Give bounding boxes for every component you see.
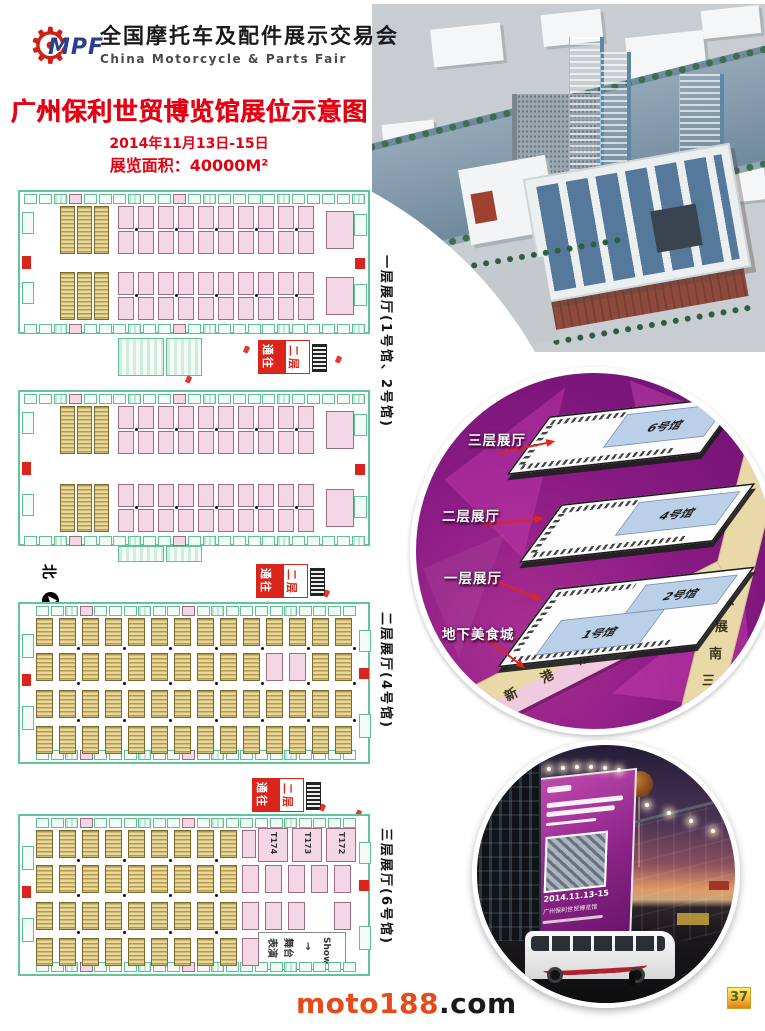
perimeter-booth: [167, 606, 180, 616]
perimeter-booth: [255, 818, 268, 828]
road-name-char: 三: [702, 670, 715, 689]
perimeter-booth: [270, 818, 283, 828]
booth-cell: [118, 231, 134, 254]
booth-cell: [238, 231, 254, 254]
wall-booth: [22, 212, 34, 234]
website-url: moto188.com: [296, 987, 517, 1020]
booth-block: [289, 618, 306, 646]
booth-cell: [138, 484, 154, 507]
hall-1-plan: [18, 390, 370, 546]
booth-cell: [218, 272, 234, 295]
perimeter-booth: [299, 962, 312, 972]
perimeter-booth: [337, 536, 350, 546]
booth-cell: [298, 206, 314, 229]
booth-block: [128, 653, 145, 681]
perimeter-booth: [292, 536, 305, 546]
wall-booth: [354, 496, 367, 518]
perimeter-booth: [84, 394, 97, 404]
perimeter-booth: [240, 606, 253, 616]
booth-cell: [326, 211, 354, 249]
booth-cell: [278, 272, 294, 295]
booth-block: [174, 902, 191, 930]
booth-block: [174, 830, 191, 858]
booth-block: [59, 830, 76, 858]
floodlight-dot: [711, 829, 715, 833]
booth-cell: [238, 484, 254, 507]
booth-cell: [266, 653, 283, 681]
plate-ticks: [561, 500, 641, 514]
booth-block: [151, 938, 168, 966]
booth-cell: [258, 231, 274, 254]
perimeter-booth: [284, 606, 297, 616]
booth-cell: [288, 902, 305, 930]
aisle-dot: [307, 719, 310, 722]
brochure-page: ⚙ MPF 全国摩托车及配件展示交易会 China Motorcycle & P…: [0, 0, 765, 1031]
perimeter-booth: [109, 818, 122, 828]
perimeter-booth: [36, 818, 49, 828]
perimeter-booth: [54, 536, 67, 546]
booth-block: [94, 484, 109, 532]
booth-T172: T172: [326, 828, 356, 862]
perimeter-booth: [307, 324, 320, 334]
booth-block: [77, 272, 92, 320]
escalator-hatch: [306, 782, 321, 810]
plate-ticks: [555, 583, 637, 597]
booth-block: [220, 865, 237, 893]
perimeter-booth: [69, 324, 82, 334]
red-marker: [323, 589, 330, 597]
perimeter-booth: [84, 194, 97, 204]
booth-block: [197, 865, 214, 893]
perimeter-booth: [51, 606, 64, 616]
stair-core: [359, 668, 369, 679]
wall-booth: [22, 918, 34, 942]
perimeter-booth: [292, 324, 305, 334]
booth-block: [36, 830, 53, 858]
aisle-dot: [77, 931, 80, 934]
booth-block: [220, 938, 237, 966]
booth-cell: [178, 272, 194, 295]
aisle-dot: [123, 894, 126, 897]
perimeter-booth: [233, 194, 246, 204]
floodlight-dot: [547, 767, 551, 771]
wall-booth: [22, 494, 34, 516]
booth-block: [312, 653, 329, 681]
perimeter-booth: [277, 536, 290, 546]
booth-cell: [118, 206, 134, 229]
booth-cell: [218, 206, 234, 229]
booth-cell: [242, 830, 256, 858]
booth-block: [60, 206, 75, 254]
sign-text: 二层: [280, 783, 296, 809]
perimeter-booth: [226, 818, 239, 828]
booth-block: [105, 902, 122, 930]
sign-white-panel: 二层: [279, 778, 304, 812]
red-marker: [319, 803, 326, 811]
hall-2-label: 2号馆: [658, 584, 704, 604]
perimeter-booth: [138, 818, 151, 828]
perimeter-booth: [343, 606, 356, 616]
event-dates: 2014年11月13日-15日: [0, 133, 378, 153]
perimeter-booth: [69, 394, 82, 404]
aisle-dot: [215, 682, 218, 685]
perimeter-booth: [211, 606, 224, 616]
perimeter-booth: [218, 194, 231, 204]
perimeter-booth: [233, 536, 246, 546]
aisle-dot: [169, 719, 172, 722]
booth-block: [105, 726, 122, 754]
booth-cell: [258, 272, 274, 295]
aisle-dot: [77, 719, 80, 722]
booth-block: [59, 865, 76, 893]
perimeter-booth: [270, 606, 283, 616]
perimeter-booth: [328, 818, 341, 828]
booth-block: [128, 726, 145, 754]
escalator-hatch: [312, 344, 327, 372]
aisle-dot: [169, 931, 172, 934]
booth-block: [197, 902, 214, 930]
show-area-text: 表演: [266, 938, 281, 958]
perimeter-booth: [218, 394, 231, 404]
booth-block: [151, 902, 168, 930]
perimeter-booth: [51, 818, 64, 828]
perimeter-booth: [99, 536, 112, 546]
stair-core: [355, 464, 365, 475]
perimeter-booth: [54, 394, 67, 404]
booth-block: [36, 618, 53, 646]
booth-block: [60, 484, 75, 532]
page-title: 广州保利世贸博览馆展位示意图: [0, 92, 378, 128]
page-number-badge: 37: [727, 987, 751, 1009]
perimeter-booth: [203, 394, 216, 404]
perimeter-booth: [277, 324, 290, 334]
booth-block: [151, 830, 168, 858]
perimeter-booth: [99, 324, 112, 334]
booth-block: [128, 938, 145, 966]
booth-block: [36, 690, 53, 718]
booth-block: [77, 406, 92, 454]
booth-block: [197, 726, 214, 754]
booth-cell: [326, 489, 354, 527]
booth-block: [197, 618, 214, 646]
booth-block: [243, 618, 260, 646]
perimeter-booth: [84, 324, 97, 334]
perimeter-booth: [211, 818, 224, 828]
booth-cell: [242, 938, 259, 966]
hall-1-label: 1号馆: [577, 622, 623, 642]
booth-cell: [334, 865, 351, 893]
perimeter-booth: [124, 818, 137, 828]
floodlight-dot: [689, 819, 693, 823]
booth-block: [312, 618, 329, 646]
perimeter-booth: [143, 394, 156, 404]
aisle-dot: [123, 859, 126, 862]
booth-block: [82, 830, 99, 858]
floor-plan-level1: 通往 二层: [6, 186, 378, 564]
stair-core: [22, 886, 31, 898]
perimeter-booth: [80, 606, 93, 616]
booth-cell: [138, 509, 154, 532]
perimeter-booth: [248, 194, 261, 204]
perimeter-booth: [313, 818, 326, 828]
perimeter-booth: [24, 394, 37, 404]
booth-cell: [258, 206, 274, 229]
perimeter-booth: [167, 818, 180, 828]
booth-block: [151, 653, 168, 681]
wall-booth: [22, 846, 34, 870]
wall-booth: [359, 842, 371, 864]
perimeter-booth: [270, 962, 283, 972]
perimeter-booth: [292, 194, 305, 204]
fair-logo: ⚙ MPF 全国摩托车及配件展示交易会 China Motorcycle & P…: [28, 20, 399, 74]
booth-cell: [278, 431, 294, 454]
perimeter-booth: [158, 194, 171, 204]
aisle-dot: [169, 682, 172, 685]
label-floor1: 一层展厅: [444, 567, 502, 587]
wall-booth: [354, 414, 367, 436]
perimeter-booth: [343, 818, 356, 828]
booth-cell: [158, 406, 174, 429]
booth-block: [151, 690, 168, 718]
perimeter-booth: [39, 394, 52, 404]
wall-booth: [354, 214, 367, 236]
perimeter-booth: [54, 194, 67, 204]
perimeter-booth: [262, 194, 275, 204]
plate-ticks: [549, 412, 629, 426]
booth-cell: [238, 406, 254, 429]
hall-6-area: 6号馆: [603, 403, 728, 448]
booth-cell: [198, 231, 214, 254]
floodlight-dot: [667, 811, 671, 815]
booth-block: [59, 938, 76, 966]
booth-T173: T173: [292, 828, 322, 862]
billboard-image: [544, 831, 608, 894]
booth-cell: [118, 272, 134, 295]
booth-block: [243, 653, 260, 681]
booth-block: [36, 938, 53, 966]
aisle-dot: [123, 931, 126, 934]
hall-2-plan: [18, 190, 370, 334]
booth-cell: [178, 484, 194, 507]
booth-block: [128, 690, 145, 718]
sign-red-panel: 通往: [252, 778, 279, 812]
booth-cell: [118, 406, 134, 429]
booth-cell: [298, 231, 314, 254]
perimeter-booth: [188, 194, 201, 204]
yellow-sign: [677, 913, 709, 925]
booth-cell: [198, 406, 214, 429]
label-floor2: 二层展厅: [442, 505, 500, 525]
escalator-sign: 通往 二层: [258, 340, 310, 374]
perimeter-booth: [128, 536, 141, 546]
booth-cell: [238, 297, 254, 320]
booth-block: [197, 830, 214, 858]
perimeter-booth: [54, 324, 67, 334]
perimeter-booth: [277, 194, 290, 204]
booth-block: [151, 618, 168, 646]
booth-cell: [258, 484, 274, 507]
perimeter-booth: [153, 606, 166, 616]
perimeter-booth: [218, 324, 231, 334]
booth-block: [197, 653, 214, 681]
booth-block: [82, 690, 99, 718]
sign-white-panel: 二层: [283, 564, 308, 598]
perimeter-booth: [24, 194, 37, 204]
site-name: moto188: [296, 987, 439, 1020]
show-area-text: Show: [321, 937, 331, 964]
booth-block: [220, 902, 237, 930]
booth-block: [266, 690, 283, 718]
plan3-side-label: 三层展厅(6号馆): [378, 828, 397, 945]
road-name-char: 路: [696, 697, 709, 716]
perimeter-booth: [337, 194, 350, 204]
booth-block: [220, 830, 237, 858]
stair-core: [22, 462, 31, 475]
booth-cell: [218, 297, 234, 320]
booth-cell: [138, 231, 154, 254]
booth-cell: [278, 509, 294, 532]
perimeter-booth: [128, 194, 141, 204]
perimeter-booth: [307, 394, 320, 404]
perimeter-booth: [94, 818, 107, 828]
booth-cell: [158, 509, 174, 532]
aisle-dot: [169, 647, 172, 650]
perimeter-booth: [24, 324, 37, 334]
floodlight-dot: [561, 766, 565, 770]
booth-cell: [158, 231, 174, 254]
perimeter-booth: [99, 194, 112, 204]
booth-block: [174, 865, 191, 893]
booth-block: [128, 618, 145, 646]
booth-block: [128, 865, 145, 893]
booth-cell: [298, 431, 314, 454]
perimeter-booth: [352, 394, 365, 404]
booth-cell: [198, 509, 214, 532]
aisle-dot: [77, 859, 80, 862]
booth-T174: T174: [258, 828, 288, 862]
booth-cell: [178, 231, 194, 254]
perimeter-booth: [143, 194, 156, 204]
floodlight-dot: [589, 765, 593, 769]
sign-text: 二层: [284, 569, 300, 595]
aisle-dot: [215, 719, 218, 722]
exhibit-area: 展览面积：40000M²: [0, 152, 378, 176]
booth-block: [59, 653, 76, 681]
aisle-dot: [307, 682, 310, 685]
wall-booth: [22, 282, 34, 304]
hall-4-plan: [18, 602, 370, 764]
sign-red-panel: 通往: [256, 564, 283, 598]
booth-cell: [298, 406, 314, 429]
booth-block: [77, 206, 92, 254]
red-marker: [335, 355, 342, 363]
glass-tower: [569, 37, 604, 181]
booth-block: [289, 690, 306, 718]
booth-cell: [138, 406, 154, 429]
org-name-en: China Motorcycle & Parts Fair: [100, 52, 399, 66]
booth-block: [59, 726, 76, 754]
aisle-dot: [123, 647, 126, 650]
booth-block: [220, 653, 237, 681]
perimeter-booth: [109, 606, 122, 616]
perimeter-booth: [299, 606, 312, 616]
aisle-dot: [353, 719, 356, 722]
booth-block: [220, 690, 237, 718]
perimeter-booth: [39, 536, 52, 546]
aisle-dot: [123, 719, 126, 722]
aisle-dot: [169, 859, 172, 862]
floodlight-dot: [603, 766, 607, 770]
wall-booth: [359, 630, 371, 652]
booth-label: T173: [303, 832, 312, 854]
aisle-dot: [215, 859, 218, 862]
booth-cell: [218, 231, 234, 254]
perimeter-booth: [69, 194, 82, 204]
night-photo: 2014.11.13-15 广州保利世贸博览馆: [472, 740, 740, 1008]
perimeter-booth: [284, 818, 297, 828]
booth-cell: [326, 277, 354, 315]
perimeter-booth: [143, 536, 156, 546]
perimeter-booth: [39, 194, 52, 204]
booth-cell: [278, 231, 294, 254]
cmpf-logo: ⚙ MPF: [28, 20, 90, 74]
perimeter-booth: [113, 194, 126, 204]
booth-cell: [118, 431, 134, 454]
booth-cell: [178, 206, 194, 229]
tour-bus: [525, 931, 675, 979]
perimeter-booth: [173, 324, 186, 334]
booth-cell: [334, 902, 351, 930]
booth-cell: [198, 484, 214, 507]
booth-block: [174, 938, 191, 966]
perimeter-booth: [69, 536, 82, 546]
perimeter-booth: [322, 324, 335, 334]
booth-block: [312, 726, 329, 754]
aisle-dot: [307, 647, 310, 650]
booth-cell: [238, 431, 254, 454]
perimeter-booth: [99, 394, 112, 404]
booth-block: [197, 690, 214, 718]
pedestrian-silhouette: [629, 971, 635, 985]
org-names: 全国摩托车及配件展示交易会 China Motorcycle & Parts F…: [100, 20, 399, 66]
booth-cell: [138, 272, 154, 295]
perimeter-booth: [352, 536, 365, 546]
booth-block: [105, 618, 122, 646]
booth-cell: [298, 272, 314, 295]
perimeter-booth: [203, 324, 216, 334]
booth-cell: [278, 484, 294, 507]
booth-cell: [218, 406, 234, 429]
billboard-venue: 广州保利世贸博览馆: [543, 901, 598, 916]
perimeter-booth: [138, 606, 151, 616]
booth-cell: [218, 484, 234, 507]
booth-block: [128, 902, 145, 930]
booth-cell: [198, 297, 214, 320]
perimeter-booth: [182, 818, 195, 828]
perimeter-booth: [337, 324, 350, 334]
perimeter-booth: [262, 394, 275, 404]
perimeter-booth: [248, 324, 261, 334]
booth-cell: [298, 297, 314, 320]
booth-cell: [242, 865, 259, 893]
booth-block: [335, 690, 352, 718]
booth-cell: [118, 297, 134, 320]
booth-block: [59, 618, 76, 646]
booth-cell: [158, 431, 174, 454]
escalator-sign: 通往 二层: [252, 778, 304, 812]
perimeter-booth: [173, 194, 186, 204]
stair-core: [359, 880, 369, 891]
